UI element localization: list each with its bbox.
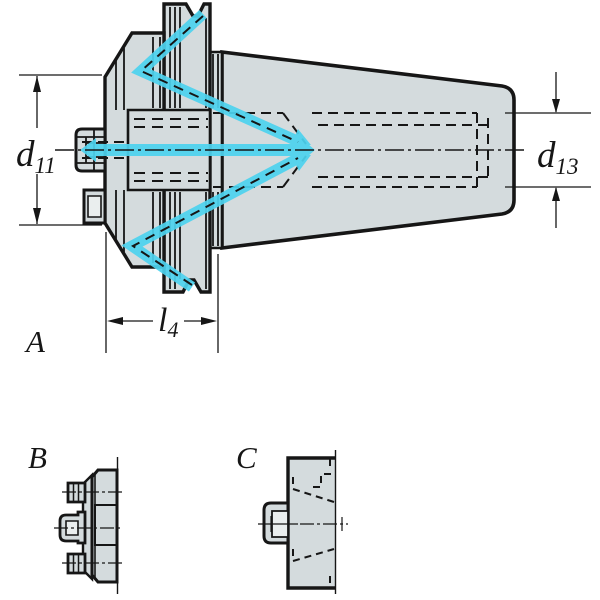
dim-d13-label: d13 [537, 135, 579, 179]
view-b-label: B [28, 440, 47, 475]
dim-arrow-up [552, 187, 560, 201]
dim-arrow-down [552, 99, 560, 113]
rear-block-fill [288, 458, 336, 588]
tool-holder-drawing: d11 d13 l4 A B [0, 0, 600, 600]
view-c-label: C [236, 440, 257, 475]
dim-arrow-down [33, 208, 41, 224]
main-assembly-view: d11 d13 l4 A [16, 4, 591, 359]
rear-block-view: C [236, 440, 348, 594]
dim-d11-label: d11 [16, 134, 56, 178]
flange-side-view: B [28, 440, 123, 594]
dim-l4-label: l4 [158, 302, 178, 342]
dim-arrow-up [33, 76, 41, 92]
clamp-block-slot [88, 196, 101, 217]
technical-drawing-page: d11 d13 l4 A B [0, 0, 600, 600]
view-a-label: A [24, 324, 46, 359]
dim-arrow-left [107, 317, 123, 325]
dim-arrow-right [201, 317, 217, 325]
